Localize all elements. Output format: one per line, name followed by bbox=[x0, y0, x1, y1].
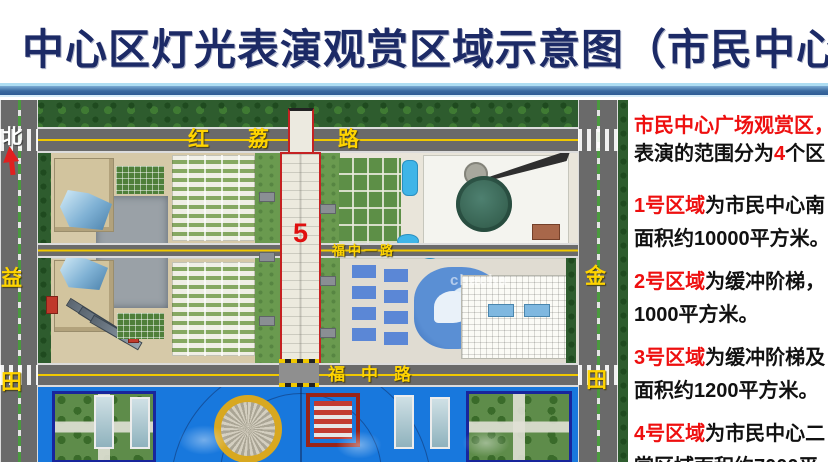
watermark-petal bbox=[178, 425, 230, 455]
north-label: 北 bbox=[2, 120, 22, 149]
slide: { "title": "中心区灯光表演观赏区域示意图（市民中心", "map":… bbox=[0, 0, 828, 462]
zone-2-paragraph: 2号区域为缓冲阶梯， 1000平方米。 bbox=[634, 266, 828, 332]
intro-line2-pre: 表演的范围分为 bbox=[634, 143, 774, 165]
jintian-road-label: 田 bbox=[586, 370, 607, 391]
zone-5-central-axis: 5 bbox=[280, 152, 321, 363]
roadside-trees bbox=[38, 153, 51, 363]
arrow-stem bbox=[9, 162, 15, 175]
dome-building bbox=[423, 155, 569, 247]
lawn-stair bbox=[320, 276, 336, 286]
plaza-skylight bbox=[94, 395, 114, 449]
plaza-skylight bbox=[394, 395, 414, 449]
zone-1-desc: 为市民中心南 bbox=[705, 195, 825, 217]
watermark-petal bbox=[462, 429, 510, 457]
water-pool bbox=[402, 160, 418, 196]
hedge-garden-north bbox=[116, 166, 164, 194]
hongli-road bbox=[0, 127, 628, 153]
zone-3-name: 3号区域 bbox=[634, 347, 705, 369]
watermark-petal bbox=[336, 431, 382, 459]
zone-4-desc: 为市民中心二 bbox=[705, 423, 825, 445]
zone-4-name: 4号区域 bbox=[634, 423, 705, 445]
roadside-trees bbox=[566, 255, 576, 365]
lawn-stair bbox=[259, 192, 275, 202]
zone-5-label: 5 bbox=[293, 218, 308, 249]
zone-4-area: 赏区域面积约7000平 bbox=[634, 456, 819, 462]
lawn-stair bbox=[320, 204, 336, 214]
zone-2-name: 2号区域 bbox=[634, 271, 705, 293]
page-title: 中心区灯光表演观赏区域示意图（市民中心 bbox=[22, 16, 828, 77]
jintian-road-label: 金 bbox=[585, 266, 606, 287]
hongli-road-label: 路 bbox=[338, 129, 359, 150]
north-arrow-icon bbox=[2, 145, 21, 176]
hedge-garden-south bbox=[117, 313, 164, 339]
tree-belt-north bbox=[0, 100, 628, 127]
red-structure bbox=[46, 296, 58, 314]
maze-garden bbox=[339, 158, 401, 246]
plaza-skylight bbox=[430, 397, 450, 449]
blue-pavilion-row bbox=[352, 265, 376, 349]
yitian-road-label: 益 bbox=[1, 268, 22, 289]
axis-crossing-zone bbox=[279, 359, 319, 387]
divider-bottom-line bbox=[0, 95, 828, 97]
intro-paragraph: 市民中心广场观赏区， 表演的范围分为4个区 bbox=[634, 112, 828, 168]
zone-2-desc: 为缓冲阶梯， bbox=[705, 271, 825, 293]
civic-center-plaza bbox=[38, 387, 578, 462]
lawn-stair bbox=[259, 252, 275, 262]
arrow-head bbox=[2, 145, 20, 163]
intro-line2-post: 个区 bbox=[785, 143, 825, 165]
roof-skylight bbox=[524, 304, 550, 317]
hongli-road-label: 荔 bbox=[248, 129, 269, 150]
info-panel: 市民中心广场观赏区， 表演的范围分为4个区 1号区域为市民中心南 面积约1000… bbox=[632, 100, 828, 462]
intro-line2-number: 4 bbox=[774, 143, 785, 165]
fuzhongyi-road-label: 福中一路 bbox=[332, 244, 396, 257]
fuzhong-road-label: 福中路 bbox=[328, 366, 427, 383]
lawn-stair bbox=[320, 328, 336, 338]
green-dome bbox=[456, 176, 512, 232]
zone-1-name: 1号区域 bbox=[634, 195, 705, 217]
blue-pavilion-row bbox=[384, 269, 408, 349]
zone-3-paragraph: 3号区域为缓冲阶梯及 面积约1200平方米。 bbox=[634, 342, 828, 408]
axis-centerline bbox=[300, 387, 302, 462]
zone-3-area: 面积约1200平方米。 bbox=[634, 380, 819, 402]
zone-4-paragraph: 4号区域为市民中心二 赏区域面积约7000平 bbox=[634, 418, 828, 462]
zone-2-area: 1000平方米。 bbox=[634, 304, 759, 326]
planting-rows-south bbox=[172, 262, 255, 356]
lawn-stair bbox=[259, 316, 275, 326]
title-divider bbox=[0, 83, 828, 100]
crosswalk bbox=[578, 129, 618, 151]
hongli-road-label: 红 bbox=[188, 129, 209, 150]
zone-1-area: 面积约10000平方米。 bbox=[634, 228, 828, 250]
yitian-road-label: 田 bbox=[1, 372, 22, 393]
watermark-text: chacha bbox=[450, 272, 508, 289]
divider-blue-band bbox=[0, 86, 828, 95]
planting-rows-north bbox=[172, 155, 255, 241]
plaza-skylight bbox=[130, 397, 150, 449]
zone-1-paragraph: 1号区域为市民中心南 面积约10000平方米。 bbox=[634, 190, 828, 256]
zone-3-desc: 为缓冲阶梯及 bbox=[705, 347, 825, 369]
site-map: 5 红 荔 路 福中一路 福中路 益 田 金 田 北 chacha bbox=[0, 100, 628, 462]
annex-roof bbox=[532, 224, 560, 240]
intro-line1: 市民中心广场观赏区， bbox=[634, 115, 828, 137]
roof-skylight bbox=[488, 304, 514, 317]
east-tree-belt bbox=[618, 100, 628, 462]
